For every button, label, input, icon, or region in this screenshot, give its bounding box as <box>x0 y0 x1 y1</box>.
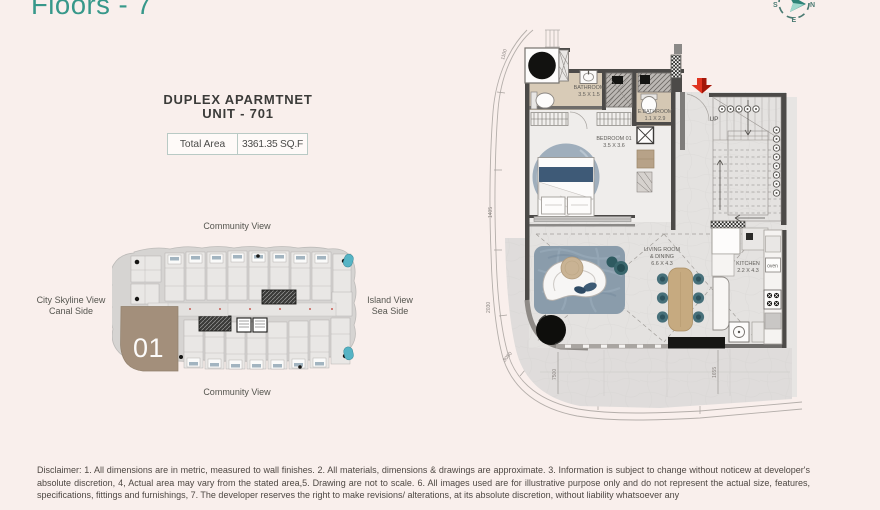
svg-text:1.1 X 2.9: 1.1 X 2.9 <box>645 116 666 122</box>
svg-text:LIVING ROOM: LIVING ROOM <box>644 247 680 253</box>
svg-text:6.6 X 4.3: 6.6 X 4.3 <box>651 261 673 267</box>
svg-text:BATHROOM: BATHROOM <box>574 85 605 91</box>
svg-text:UP: UP <box>709 116 718 123</box>
svg-text:7500: 7500 <box>552 369 558 380</box>
svg-text:3050: 3050 <box>502 351 514 364</box>
svg-text:2030: 2030 <box>486 302 492 313</box>
svg-text:& DINING: & DINING <box>650 254 674 260</box>
svg-text:3.5 X 1.5: 3.5 X 1.5 <box>578 92 600 98</box>
svg-text:KITCHEN: KITCHEN <box>736 261 760 267</box>
svg-text:2.2 X 4.3: 2.2 X 4.3 <box>737 268 759 274</box>
svg-text:E.BATHROOM: E.BATHROOM <box>638 109 673 115</box>
svg-text:S: S <box>773 2 778 9</box>
svg-text:1405: 1405 <box>488 207 494 218</box>
svg-text:3.5 X 3.6: 3.5 X 3.6 <box>603 143 625 149</box>
svg-text:BEDROOM 01: BEDROOM 01 <box>596 136 631 142</box>
svg-text:1655: 1655 <box>712 367 718 378</box>
svg-text:N: N <box>810 2 815 9</box>
svg-text:oven: oven <box>767 264 778 270</box>
svg-text:01: 01 <box>133 333 164 363</box>
